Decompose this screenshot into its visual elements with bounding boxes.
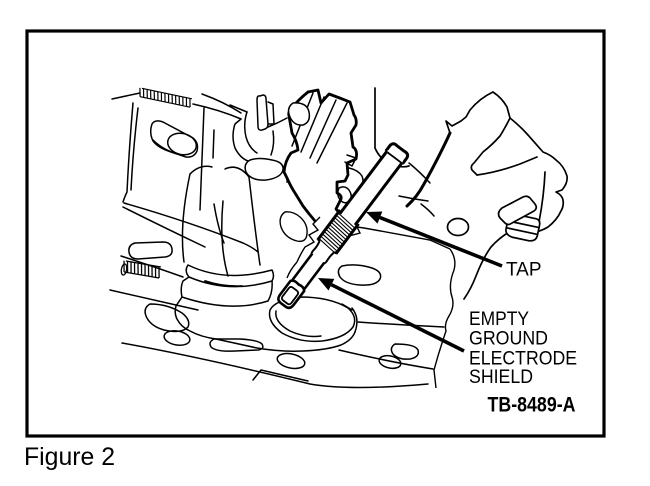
- svg-text:Figure 2: Figure 2: [24, 444, 115, 471]
- svg-text:GROUND: GROUND: [469, 328, 548, 350]
- svg-text:TB-8489-A: TB-8489-A: [488, 394, 576, 417]
- svg-text:TAP: TAP: [506, 260, 542, 281]
- svg-text:SHIELD: SHIELD: [469, 366, 533, 388]
